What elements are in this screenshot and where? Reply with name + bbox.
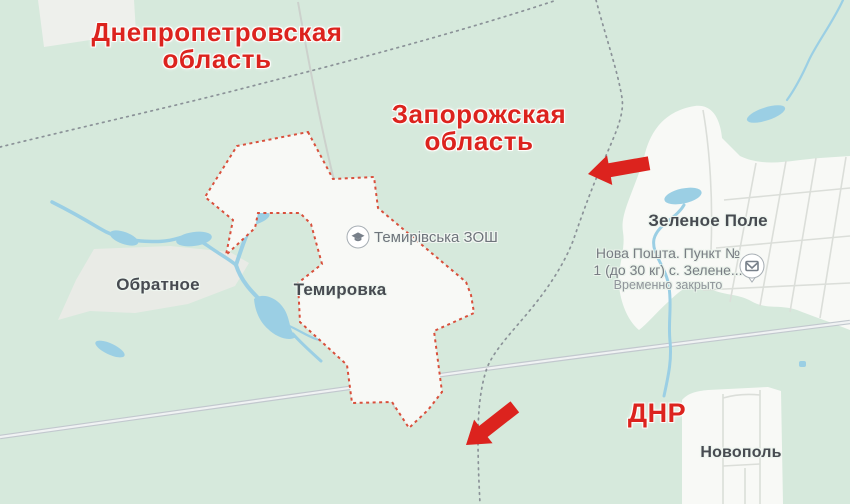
- map-base-layer: [0, 0, 850, 504]
- settlement-novopol: [682, 387, 783, 504]
- school-poi-marker[interactable]: [347, 226, 369, 248]
- map-canvas[interactable]: Днепропетровская область Запорожская обл…: [0, 0, 850, 504]
